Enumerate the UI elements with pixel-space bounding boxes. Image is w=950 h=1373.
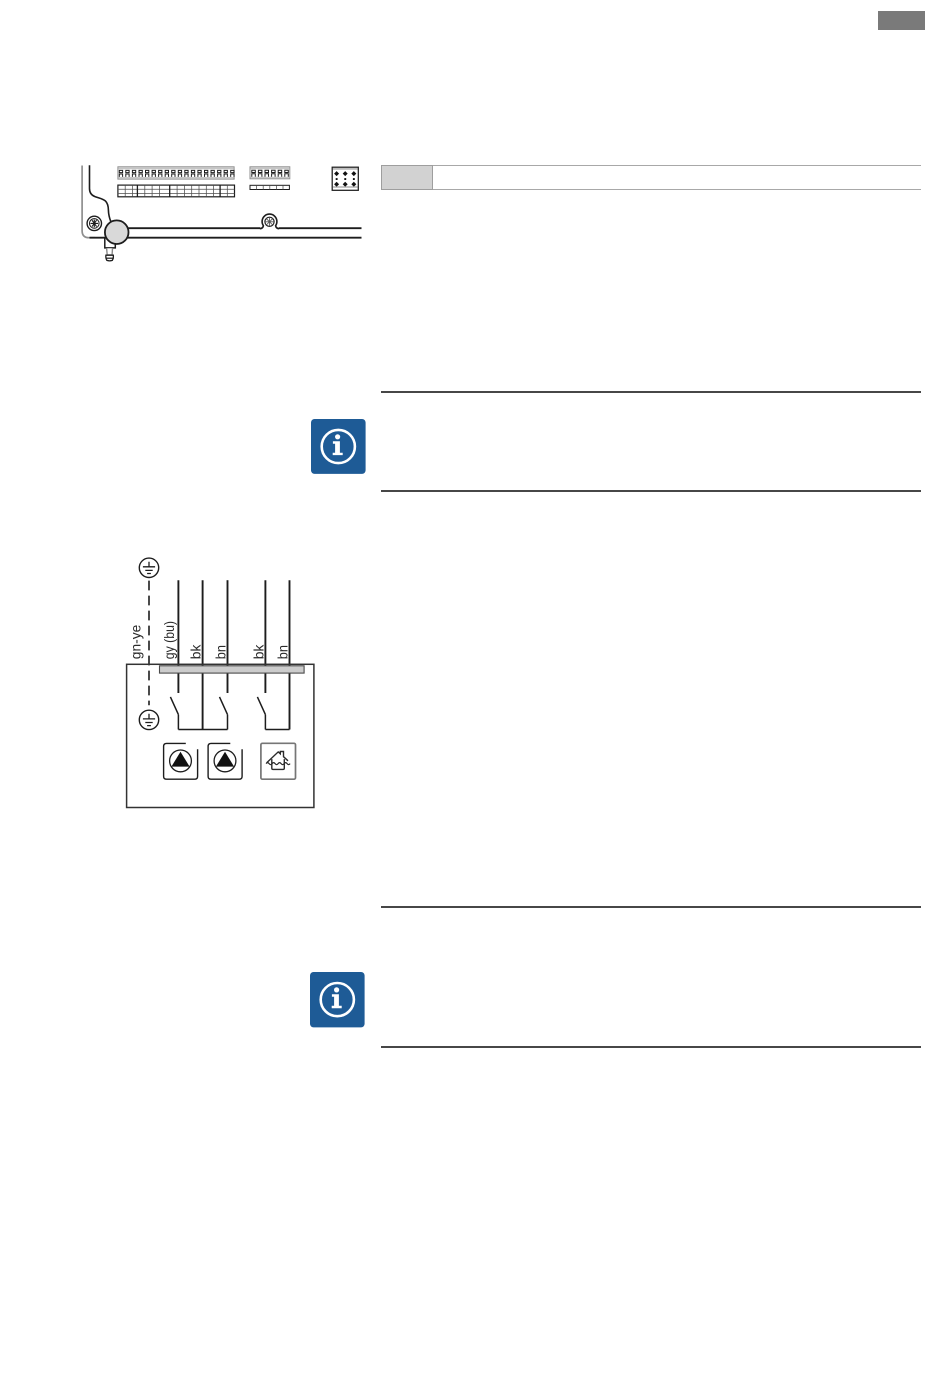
- svg-text:bk: bk: [189, 644, 204, 659]
- svg-text:gn-ye: gn-ye: [129, 625, 144, 660]
- svg-text:bn: bn: [275, 645, 290, 659]
- svg-text:gy (bu): gy (bu): [162, 621, 177, 659]
- svg-text:bk: bk: [251, 644, 266, 659]
- svg-text:bn: bn: [213, 645, 228, 659]
